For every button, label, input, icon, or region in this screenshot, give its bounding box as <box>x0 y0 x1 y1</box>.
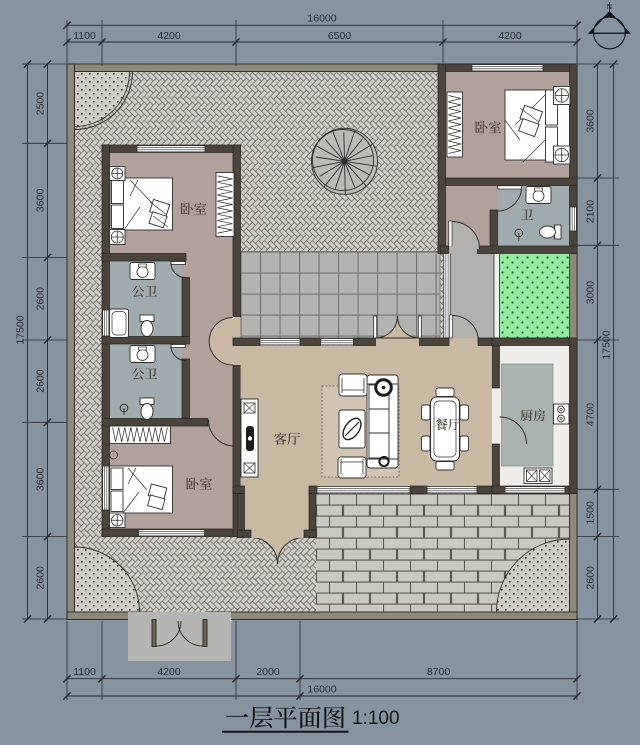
svg-text:8700: 8700 <box>427 666 451 678</box>
svg-text:1100: 1100 <box>73 666 96 678</box>
svg-text:N: N <box>607 4 612 11</box>
svg-text:3600: 3600 <box>35 468 47 492</box>
svg-text:4200: 4200 <box>157 666 181 678</box>
svg-text:2600: 2600 <box>35 566 47 590</box>
svg-text:3600: 3600 <box>585 109 597 133</box>
svg-text:4200: 4200 <box>157 30 181 42</box>
svg-text:4700: 4700 <box>585 403 597 427</box>
svg-text:3600: 3600 <box>35 189 47 213</box>
svg-text:2100: 2100 <box>585 200 597 224</box>
svg-text:2600: 2600 <box>585 566 597 590</box>
svg-text:4200: 4200 <box>498 30 522 42</box>
svg-text:6500: 6500 <box>328 30 352 42</box>
svg-text:17500: 17500 <box>601 330 613 359</box>
svg-text:2600: 2600 <box>35 369 47 393</box>
svg-text:16000: 16000 <box>307 13 336 25</box>
svg-text:2600: 2600 <box>35 287 47 311</box>
svg-text:2000: 2000 <box>256 666 280 678</box>
svg-text:1100: 1100 <box>73 30 96 42</box>
svg-text:16000: 16000 <box>307 684 336 696</box>
svg-text:3000: 3000 <box>585 281 597 305</box>
svg-text:2500: 2500 <box>35 92 47 116</box>
svg-text:17500: 17500 <box>15 315 27 344</box>
svg-text:1500: 1500 <box>585 501 597 525</box>
svg-text:1:100: 1:100 <box>352 708 400 729</box>
